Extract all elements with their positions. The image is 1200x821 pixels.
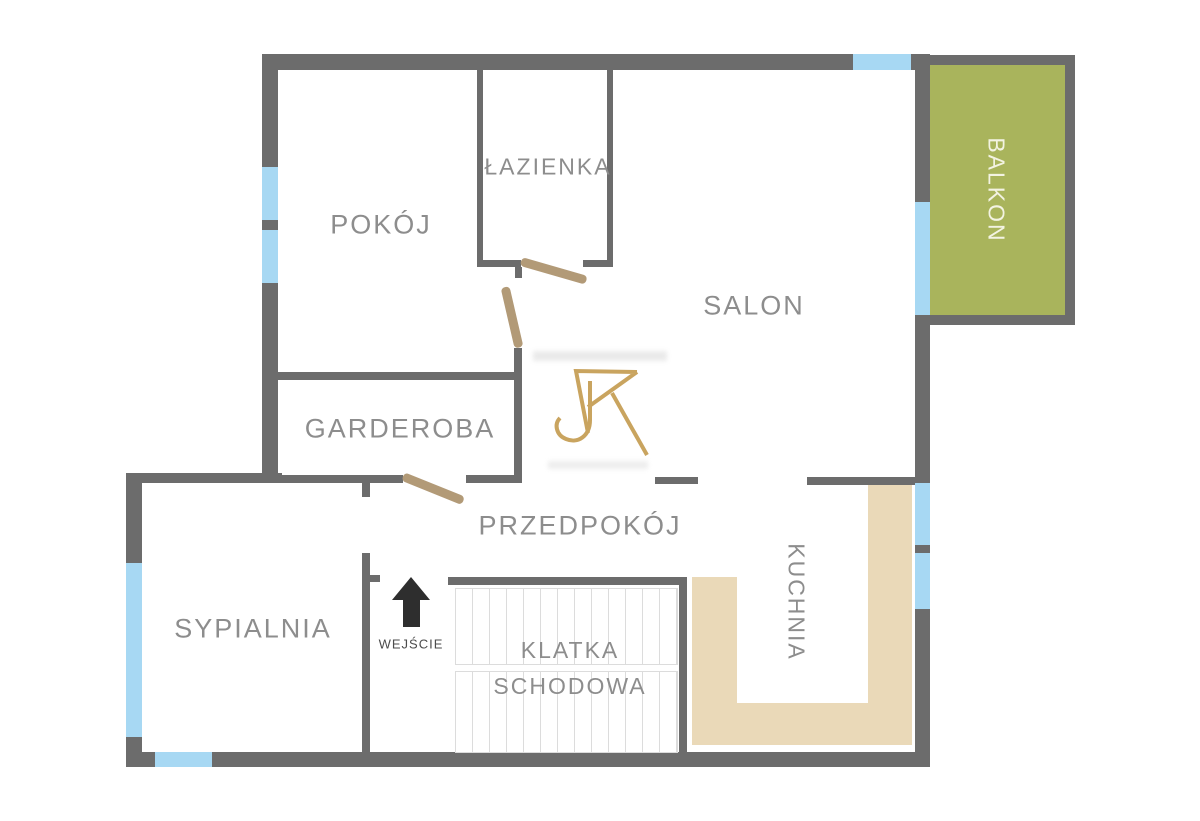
floor-plan: BALKON WEJŚCIE POKÓJ ŁAZIENKA SALON GARD… bbox=[0, 0, 1200, 821]
wall-hall-segment-a bbox=[466, 475, 522, 483]
room-label-salon: SALON bbox=[703, 291, 805, 322]
bathroom-door-leaf bbox=[520, 257, 588, 284]
wall-top bbox=[262, 54, 930, 70]
wall-entry-stub bbox=[370, 575, 380, 582]
wall-balcony-top bbox=[930, 55, 1075, 65]
entrance-arrow-icon bbox=[392, 577, 430, 600]
wall-bottom bbox=[126, 752, 930, 767]
klatka-line-1: KLATKA bbox=[521, 637, 620, 663]
room-label-przedpokoj: PRZEDPOKÓJ bbox=[478, 511, 681, 542]
entrance-label: WEJŚCIE bbox=[379, 637, 444, 652]
klatka-line-2: SCHODOWA bbox=[493, 673, 646, 699]
room-label-garderoba: GARDEROBA bbox=[305, 414, 496, 445]
window-top-wall bbox=[853, 54, 911, 70]
room-label-sypialnia: SYPIALNIA bbox=[174, 614, 332, 645]
window-balcony-door bbox=[915, 202, 930, 315]
window-bedroom-left bbox=[126, 563, 142, 737]
wall-right bbox=[915, 54, 930, 767]
room-label-lazienka: ŁAZIENKA bbox=[484, 154, 611, 181]
balcony-label: BALKON bbox=[983, 137, 1010, 242]
window-kitchen-lower bbox=[915, 553, 930, 609]
wall-balcony-right bbox=[1065, 55, 1075, 325]
window-room-lower bbox=[262, 230, 278, 283]
wall-bedroom-right bbox=[362, 553, 370, 752]
logo-k-stroke bbox=[576, 371, 647, 455]
wall-balcony-bottom bbox=[930, 315, 1075, 325]
watermark-line-bottom bbox=[548, 461, 648, 469]
wall-bathroom-door-stub bbox=[515, 267, 522, 278]
jk-monogram-logo bbox=[543, 358, 653, 462]
window-kitchen-upper bbox=[915, 483, 930, 545]
room-label-klatka-schodowa: KLATKA SCHODOWA bbox=[493, 632, 646, 704]
wall-bathroom-left bbox=[477, 70, 483, 267]
wall-wardrobe-bottom bbox=[278, 475, 403, 483]
wall-room-wardrobe bbox=[278, 372, 517, 380]
wall-bedroom-top bbox=[126, 473, 282, 483]
wall-bathroom-bottom-left bbox=[477, 260, 521, 267]
wall-hall-segment-b bbox=[655, 477, 698, 484]
room-label-pokoj: POKÓJ bbox=[330, 210, 432, 241]
entrance-arrow-shaft bbox=[403, 600, 420, 627]
wall-staircase-right bbox=[679, 577, 687, 752]
wall-staircase-top bbox=[448, 577, 687, 585]
wardrobe-door-leaf bbox=[401, 472, 465, 505]
wall-bedroom-door-stub bbox=[362, 481, 370, 497]
room-door-leaf bbox=[501, 286, 524, 348]
wall-wardrobe-right bbox=[514, 348, 522, 480]
window-room-upper bbox=[262, 167, 278, 220]
window-bedroom-bottom bbox=[155, 752, 212, 767]
wall-bathroom-bottom-right bbox=[583, 260, 613, 267]
room-label-kuchnia: KUCHNIA bbox=[783, 543, 810, 661]
wall-hall-segment-c bbox=[807, 477, 917, 485]
kitchen-counter-right bbox=[868, 485, 912, 745]
